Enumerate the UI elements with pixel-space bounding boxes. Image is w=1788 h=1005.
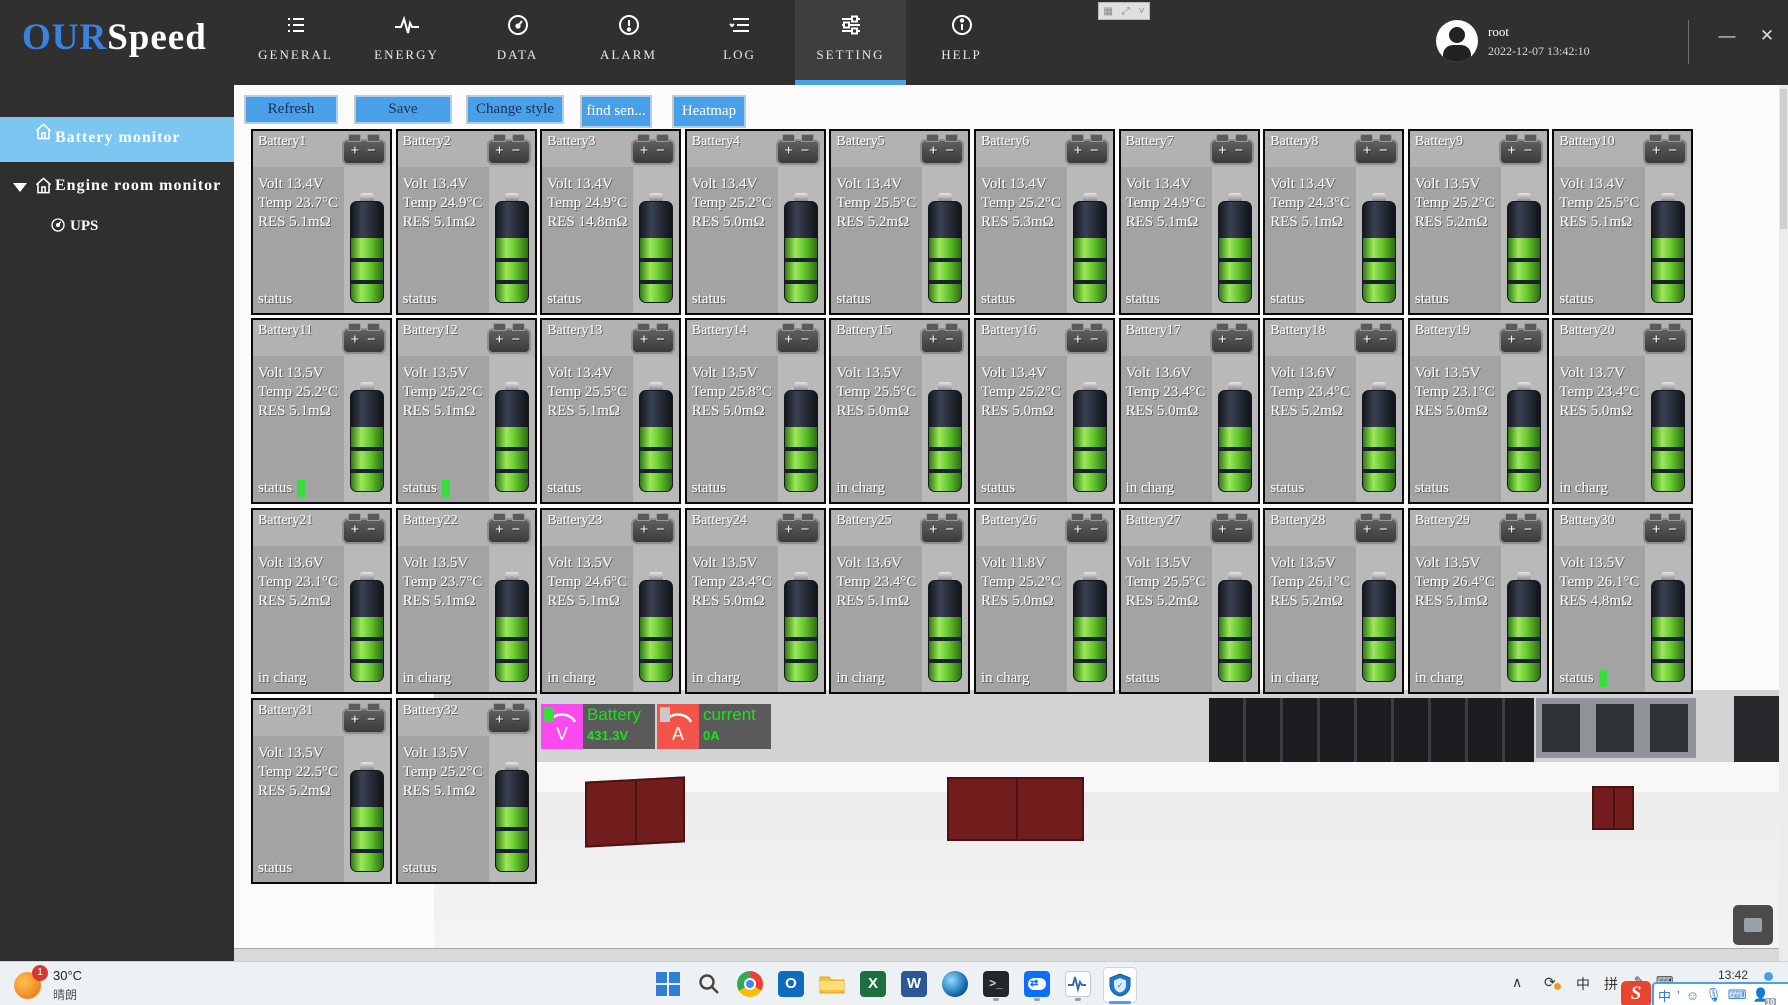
volt-value: Volt 13.5V [547,554,627,573]
battery-plusminus-icon: + − [1643,518,1687,544]
battery-plusminus-icon: + − [1065,139,1109,165]
sidebar-item-engine-room-monitor[interactable]: Engine room monitor [0,171,234,203]
battery-name: Battery29 [1415,513,1470,529]
horizontal-scroll-area[interactable] [234,948,1788,962]
taskbar-chrome-icon[interactable] [734,967,766,1001]
res-value: RES 5.0mΩ [692,402,772,421]
ime-emoji-icon[interactable]: ☺ [1686,988,1699,1003]
battery-values: Volt 13.4VTemp 25.2°CRES 5.0mΩ [692,175,772,232]
battery-values: Volt 13.5VTemp 26.4°CRES 5.1mΩ [1415,554,1495,611]
ime-toolbar: 中 ’ ☺ 🎙 ⌨ 👤10 [1652,982,1788,1005]
battery-card-27[interactable]: Battery27+ −Volt 13.5VTemp 25.5°CRES 5.2… [1119,508,1260,694]
res-value: RES 5.1mΩ [258,213,338,232]
weather-widget[interactable]: 1 30°C 晴朗 [14,966,82,1003]
battery-values: Volt 13.5VTemp 23.4°CRES 5.0mΩ [692,554,772,611]
battery-card-header: Battery19+ − [1410,320,1547,356]
voltage-value: 431.3V [587,728,655,743]
res-value: RES 5.0mΩ [1126,402,1206,421]
temp-value: Temp 25.5°C [1126,573,1206,592]
battery-card-11[interactable]: Battery11+ −Volt 13.5VTemp 25.2°CRES 5.1… [251,318,392,504]
battery-card-header: Battery20+ − [1554,320,1691,356]
expand-icon[interactable]: ⤢ [1122,6,1130,17]
cabinets [1536,698,1696,758]
battery-card-9[interactable]: Battery9+ −Volt 13.5VTemp 25.2°CRES 5.2m… [1408,129,1549,315]
res-value: RES 5.1mΩ [547,402,627,421]
res-value: RES 5.1mΩ [547,592,627,611]
tray-sync-icon[interactable]: ⟳ [1544,974,1556,991]
taskbar-windows-start-icon[interactable] [652,967,684,1001]
battery-level-icon [1362,193,1396,303]
ime-keyboard-icon[interactable]: ⌨ [1728,987,1747,1003]
battery-name: Battery18 [1270,323,1325,339]
volt-value: Volt 13.5V [403,364,483,383]
battery-plusminus-icon: + − [1354,328,1398,354]
volt-value: Volt 13.4V [1559,175,1639,194]
battery-card-1[interactable]: Battery1+ −Volt 13.4VTemp 23.7°CRES 5.1m… [251,129,392,315]
battery-card-header: Battery2+ − [398,131,535,167]
tab-setting[interactable]: SETTING [795,0,906,85]
screen-capture-widget[interactable]: ▦ ⤢ ˅ [1098,2,1150,20]
taskbar-excel-icon[interactable]: X [857,967,889,1001]
battery-values: Volt 13.4VTemp 24.9°CRES 14.8mΩ [547,175,627,232]
weather-temp: 30°C [53,968,82,983]
battery-card-header: Battery18+ − [1265,320,1402,356]
heatmap-button[interactable]: Heatmap [673,96,745,127]
battery-level-icon [928,193,962,303]
battery-card-21[interactable]: Battery21+ −Volt 13.6VTemp 23.1°CRES 5.2… [251,508,392,694]
volt-value: Volt 13.5V [258,364,338,383]
battery-plusminus-icon: + − [631,139,675,165]
ime-mic-icon[interactable]: 🎙 [1705,987,1722,1003]
battery-card-6[interactable]: Battery6+ −Volt 13.4VTemp 25.2°CRES 5.3m… [974,129,1115,315]
battery-level-column [1645,167,1691,313]
temp-value: Temp 24.9°C [547,194,627,213]
battery-name: Battery3 [547,134,595,150]
tab-alarm[interactable]: ALARM [573,0,684,85]
taskbar-terminal-icon[interactable]: >_ [980,967,1012,1001]
battery-level-icon [495,762,529,872]
battery-status: status [692,291,726,308]
battery-card-15[interactable]: Battery15+ −Volt 13.5VTemp 25.5°CRES 5.0… [829,318,970,504]
tray-lang-pinyin[interactable]: 拼 [1604,974,1618,994]
battery-name: Battery17 [1126,323,1181,339]
battery-card-10[interactable]: Battery10+ −Volt 13.4VTemp 25.5°CRES 5.1… [1552,129,1693,315]
temp-value: Temp 24.9°C [403,194,483,213]
battery-card-header: Battery28+ − [1265,510,1402,546]
volt-value: Volt 11.8V [981,554,1061,573]
save-button[interactable]: Save [355,96,451,123]
battery-card-header: Battery9+ − [1410,131,1547,167]
login-datetime: 2022-12-07 13:42:10 [1488,44,1590,59]
battery-name: Battery12 [403,323,458,339]
volt-value: Volt 13.5V [258,744,338,763]
scrollbar-thumb[interactable] [1780,89,1787,229]
battery-name: Battery19 [1415,323,1470,339]
weather-badge: 1 [32,965,48,981]
battery-plusminus-icon: + − [776,139,820,165]
temp-value: Temp 25.2°C [403,763,483,782]
battery-level-column [344,736,390,882]
battery-status: status [258,860,292,877]
battery-card-29[interactable]: Battery29+ −Volt 13.5VTemp 26.4°CRES 5.1… [1408,508,1549,694]
battery-card-header: Battery24+ − [687,510,824,546]
res-value: RES 5.1mΩ [403,782,483,801]
tray-lang-zh[interactable]: 中 [1576,974,1590,994]
volt-value: Volt 13.5V [692,554,772,573]
battery-level-icon [639,572,673,682]
battery-status: in charg [547,670,595,687]
battery-status: status [1559,670,1606,687]
tab-label: DATA [497,47,539,63]
battery-name: Battery31 [258,703,313,719]
res-value: RES 5.2mΩ [836,213,916,232]
battery-name: Battery1 [258,134,306,150]
battery-values: Volt 13.4VTemp 25.2°CRES 5.3mΩ [981,175,1061,232]
res-value: RES 5.2mΩ [1270,402,1350,421]
tab-label: LOG [723,47,756,63]
volt-value: Volt 13.4V [836,175,916,194]
tab-data[interactable]: DATA [462,0,573,85]
battery-level-icon [1073,572,1107,682]
battery-card-4[interactable]: Battery4+ −Volt 13.4VTemp 25.2°CRES 5.0m… [685,129,826,315]
temp-value: Temp 23.4°C [1270,383,1350,402]
battery-level-column [489,546,535,692]
tab-log[interactable]: LOG [684,0,795,85]
sidebar-item-label: Engine room monitor [55,177,221,195]
battery-status: in charg [1559,480,1607,497]
battery-plusminus-icon: + − [487,708,531,734]
gauge-icon [50,217,66,233]
battery-plusminus-icon: + − [1643,328,1687,354]
battery-card-12[interactable]: Battery12+ −Volt 13.5VTemp 25.2°CRES 5.1… [396,318,537,504]
battery-level-column [1212,167,1258,313]
tab-label: HELP [941,47,982,63]
battery-card-32[interactable]: Battery32+ −Volt 13.5VTemp 25.2°CRES 5.1… [396,698,537,884]
logo-speed: Speed [107,17,207,58]
battery-card-30[interactable]: Battery30+ −Volt 13.5VTemp 26.1°CRES 4.8… [1552,508,1693,694]
minimize-button[interactable]: — [1712,26,1742,46]
red-door [585,776,685,847]
battery-level-column [1645,546,1691,692]
app-window: OURSpeed GENERALENERGYDATAALARMLOGSETTIN… [0,0,1788,1005]
res-value: RES 5.2mΩ [1126,592,1206,611]
battery-card-23[interactable]: Battery23+ −Volt 13.5VTemp 24.6°CRES 5.1… [540,508,681,694]
battery-plusminus-icon: + − [920,328,964,354]
battery-card-19[interactable]: Battery19+ −Volt 13.5VTemp 23.1°CRES 5.0… [1408,318,1549,504]
battery-card-header: Battery1+ − [253,131,390,167]
tab-energy[interactable]: ENERGY [351,0,462,85]
temp-value: Temp 23.1°C [258,573,338,592]
battery-level-icon [928,572,962,682]
battery-values: Volt 13.4VTemp 25.5°CRES 5.1mΩ [547,364,627,421]
taskbar-monitor-icon[interactable] [1062,967,1094,1001]
battery-plusminus-icon: + − [487,139,531,165]
current-value: 0A [703,728,771,743]
res-value: RES 5.1mΩ [403,592,483,611]
battery-name: Battery15 [836,323,891,339]
taskbar-edge-icon[interactable] [939,967,971,1001]
volt-value: Volt 13.6V [258,554,338,573]
battery-values: Volt 13.5VTemp 25.5°CRES 5.2mΩ [1126,554,1206,611]
server-rack [1734,696,1779,762]
battery-card-header: Battery8+ − [1265,131,1402,167]
battery-plusminus-icon: + − [487,518,531,544]
taskbar-outlook-icon[interactable]: O [775,967,807,1001]
voltmeter-icon: V [541,704,583,749]
taskbar-search-icon[interactable] [693,967,725,1001]
res-value: RES 5.1mΩ [403,213,483,232]
battery-card-7[interactable]: Battery7+ −Volt 13.4VTemp 24.9°CRES 5.1m… [1119,129,1260,315]
battery-values: Volt 13.5VTemp 24.6°CRES 5.1mΩ [547,554,627,611]
res-value: RES 5.0mΩ [1559,402,1639,421]
battery-level-column [344,356,390,502]
volt-value: Volt 13.4V [547,175,627,194]
pulse-icon [394,13,420,39]
sidebar-item-ups[interactable]: UPS [0,213,234,241]
battery-level-icon [1218,193,1252,303]
tray-chevron-up-icon[interactable]: ∧ [1512,974,1522,991]
battery-level-column [633,546,679,692]
battery-plusminus-icon: + − [1499,328,1543,354]
battery-level-icon [1651,193,1685,303]
battery-card-header: Battery16+ − [976,320,1113,356]
res-value: RES 5.0mΩ [836,402,916,421]
collapse-triangle-icon[interactable] [13,183,27,192]
battery-name: Battery10 [1559,134,1614,150]
battery-status: status [981,291,1015,308]
res-value: RES 4.8mΩ [1559,592,1639,611]
battery-card-header: Battery12+ − [398,320,535,356]
battery-card-31[interactable]: Battery31+ −Volt 13.5VTemp 22.5°CRES 5.2… [251,698,392,884]
volt-value: Volt 13.5V [692,364,772,383]
res-value: RES 5.2mΩ [1415,213,1495,232]
battery-card-header: Battery21+ − [253,510,390,546]
taskbar-security-shield-icon[interactable]: ✓ [1103,967,1137,1003]
battery-level-column [344,167,390,313]
ime-user-icon[interactable]: 👤10 [1752,987,1768,1003]
battery-level-column [489,167,535,313]
grid-icon[interactable]: ▦ [1103,6,1112,17]
temp-value: Temp 25.2°C [403,383,483,402]
refresh-button[interactable]: Refresh [245,96,337,123]
weather-desc: 晴朗 [53,986,82,1003]
temp-value: Temp 23.4°C [1126,383,1206,402]
res-value: RES 5.1mΩ [1270,213,1350,232]
battery-card-13[interactable]: Battery13+ −Volt 13.4VTemp 25.5°CRES 5.1… [540,318,681,504]
battery-card-header: Battery6+ − [976,131,1113,167]
taskbar-teamviewer-icon[interactable]: ⇄ [1021,967,1053,1001]
battery-status: status [547,291,581,308]
ammeter-icon: A [657,704,699,749]
battery-status: in charg [258,670,306,687]
close-button[interactable]: ✕ [1752,26,1782,46]
battery-values: Volt 13.4VTemp 24.9°CRES 5.1mΩ [403,175,483,232]
res-value: RES 5.1mΩ [1126,213,1206,232]
temp-value: Temp 25.2°C [981,383,1061,402]
battery-values: Volt 13.5VTemp 25.2°CRES 5.1mΩ [403,744,483,801]
battery-level-column [1356,546,1402,692]
battery-card-2[interactable]: Battery2+ −Volt 13.4VTemp 24.9°CRES 5.1m… [396,129,537,315]
res-value: RES 5.2mΩ [258,592,338,611]
battery-status: in charg [692,670,740,687]
battery-level-column [1067,167,1113,313]
battery-name: Battery24 [692,513,747,529]
battery-name: Battery20 [1559,323,1614,339]
battery-status: in charg [981,670,1029,687]
view-reset-button[interactable] [1733,905,1773,945]
battery-values: Volt 13.4VTemp 25.5°CRES 5.1mΩ [1559,175,1639,232]
battery-values: Volt 13.6VTemp 23.1°CRES 5.2mΩ [258,554,338,611]
tab-help[interactable]: HELP [906,0,1017,85]
tab-label: GENERAL [258,47,333,63]
tab-label: ALARM [600,47,657,63]
battery-name: Battery23 [547,513,602,529]
battery-level-column [1645,356,1691,502]
battery-values: Volt 13.6VTemp 23.4°CRES 5.0mΩ [1126,364,1206,421]
battery-card-header: Battery13+ − [542,320,679,356]
sidebar-item-battery-monitor[interactable]: Battery monitor [0,117,234,162]
battery-name: Battery25 [836,513,891,529]
res-value: RES 5.2mΩ [258,782,338,801]
status-indicator [297,480,305,497]
home-icon [34,122,53,141]
temp-value: Temp 25.8°C [692,383,772,402]
battery-card-26[interactable]: Battery26+ −Volt 11.8VTemp 25.2°CRES 5.0… [974,508,1115,694]
battery-card-header: Battery31+ − [253,700,390,736]
tab-general[interactable]: GENERAL [240,0,351,85]
battery-level-icon [350,572,384,682]
battery-status: in charg [1415,670,1463,687]
tab-label: ENERGY [374,47,439,63]
res-value: RES 5.1mΩ [403,402,483,421]
tray-clock[interactable]: 13:42 [1718,968,1748,982]
sogou-logo[interactable]: S [1621,981,1651,1005]
battery-card-24[interactable]: Battery24+ −Volt 13.5VTemp 23.4°CRES 5.0… [685,508,826,694]
user-block[interactable]: root 2022-12-07 13:42:10 [1436,20,1590,62]
battery-card-16[interactable]: Battery16+ −Volt 13.4VTemp 25.2°CRES 5.0… [974,318,1115,504]
battery-level-column [778,546,824,692]
temp-value: Temp 25.2°C [1415,194,1495,213]
temp-value: Temp 26.1°C [1559,573,1639,592]
battery-card-18[interactable]: Battery18+ −Volt 13.6VTemp 23.4°CRES 5.2… [1263,318,1404,504]
taskbar-word-icon[interactable]: W [898,967,930,1001]
battery-name: Battery27 [1126,513,1181,529]
volt-value: Volt 13.4V [981,175,1061,194]
battery-level-column [922,546,968,692]
battery-card-14[interactable]: Battery14+ −Volt 13.5VTemp 25.8°CRES 5.0… [685,318,826,504]
battery-card-28[interactable]: Battery28+ −Volt 13.5VTemp 26.1°CRES 5.2… [1263,508,1404,694]
res-value: RES 5.1mΩ [258,402,338,421]
battery-level-icon [1507,382,1541,492]
res-value: RES 5.2mΩ [1270,592,1350,611]
battery-status: status [981,480,1015,497]
battery-level-icon [1218,382,1252,492]
battery-values: Volt 13.5VTemp 25.2°CRES 5.2mΩ [1415,175,1495,232]
battery-card-22[interactable]: Battery22+ −Volt 13.5VTemp 23.7°CRES 5.1… [396,508,537,694]
vertical-scrollbar[interactable] [1779,85,1788,961]
temp-value: Temp 26.4°C [1415,573,1495,592]
battery-status: status [1270,480,1304,497]
battery-level-icon [350,762,384,872]
battery-status: status [1559,291,1593,308]
volt-value: Volt 13.6V [1126,364,1206,383]
ime-punct-icon[interactable]: ’ [1677,988,1680,1003]
battery-status: in charg [1126,480,1174,497]
volt-value: Volt 13.4V [258,175,338,194]
svg-text:A: A [672,724,684,744]
battery-level-column [778,167,824,313]
current-label: current 0A [699,704,771,749]
battery-plusminus-icon: + − [1354,518,1398,544]
ime-mode[interactable]: 中 [1658,986,1671,1005]
find-sen--button[interactable]: find sen... [581,96,651,127]
battery-level-icon [350,382,384,492]
volt-value: Volt 13.5V [836,364,916,383]
battery-values: Volt 13.5VTemp 25.8°CRES 5.0mΩ [692,364,772,421]
battery-card-25[interactable]: Battery25+ −Volt 13.6VTemp 23.4°CRES 5.1… [829,508,970,694]
volt-value: Volt 13.5V [1415,364,1495,383]
battery-values: Volt 13.5VTemp 26.1°CRES 4.8mΩ [1559,554,1639,611]
alarm-icon [617,13,641,39]
battery-values: Volt 13.5VTemp 22.5°CRES 5.2mΩ [258,744,338,801]
notification-dot[interactable] [1764,972,1773,981]
battery-values: Volt 13.5VTemp 23.1°CRES 5.0mΩ [1415,364,1495,421]
battery-level-icon [784,193,818,303]
battery-name: Battery6 [981,134,1029,150]
battery-name: Battery5 [836,134,884,150]
temp-value: Temp 25.5°C [1559,194,1639,213]
battery-card-17[interactable]: Battery17+ −Volt 13.6VTemp 23.4°CRES 5.0… [1119,318,1260,504]
battery-card-8[interactable]: Battery8+ −Volt 13.4VTemp 24.3°CRES 5.1m… [1263,129,1404,315]
battery-values: Volt 13.4VTemp 24.9°CRES 5.1mΩ [1126,175,1206,232]
taskbar-file-explorer-icon[interactable] [816,967,848,1001]
res-value: RES 5.0mΩ [692,213,772,232]
battery-level-icon [495,382,529,492]
battery-values: Volt 13.5VTemp 23.7°CRES 5.1mΩ [403,554,483,611]
battery-name: Battery11 [258,323,313,339]
battery-level-column [1356,356,1402,502]
battery-plusminus-icon: + − [1499,518,1543,544]
battery-voltage-label: Battery 431.3V [583,704,655,749]
temp-value: Temp 25.5°C [547,383,627,402]
chevron-down-icon[interactable]: ˅ [1139,6,1145,17]
temp-value: Temp 26.1°C [1270,573,1350,592]
battery-name: Battery14 [692,323,747,339]
battery-name: Battery4 [692,134,740,150]
battery-card-3[interactable]: Battery3+ −Volt 13.4VTemp 24.9°CRES 14.8… [540,129,681,315]
battery-card-5[interactable]: Battery5+ −Volt 13.4VTemp 25.5°CRES 5.2m… [829,129,970,315]
battery-level-icon [1507,193,1541,303]
voltage-title: Battery [587,705,655,725]
volt-value: Volt 13.6V [1270,364,1350,383]
temp-value: Temp 25.2°C [981,573,1061,592]
battery-level-column [1501,356,1547,502]
battery-level-column [1212,546,1258,692]
battery-name: Battery32 [403,703,458,719]
current-title: current [703,705,771,725]
temp-value: Temp 25.5°C [836,194,916,213]
battery-values: Volt 13.4VTemp 23.7°CRES 5.1mΩ [258,175,338,232]
battery-level-icon [495,193,529,303]
temp-value: Temp 22.5°C [258,763,338,782]
battery-values: Volt 13.5VTemp 26.1°CRES 5.2mΩ [1270,554,1350,611]
sidebar-item-label: UPS [70,218,98,235]
battery-values: Volt 13.5VTemp 25.2°CRES 5.1mΩ [258,364,338,421]
change-style-button[interactable]: Change style [467,96,563,123]
sidebar-item-label: Battery monitor [55,129,181,147]
battery-level-icon [1651,382,1685,492]
battery-card-20[interactable]: Battery20+ −Volt 13.7VTemp 23.4°CRES 5.0… [1552,318,1693,504]
